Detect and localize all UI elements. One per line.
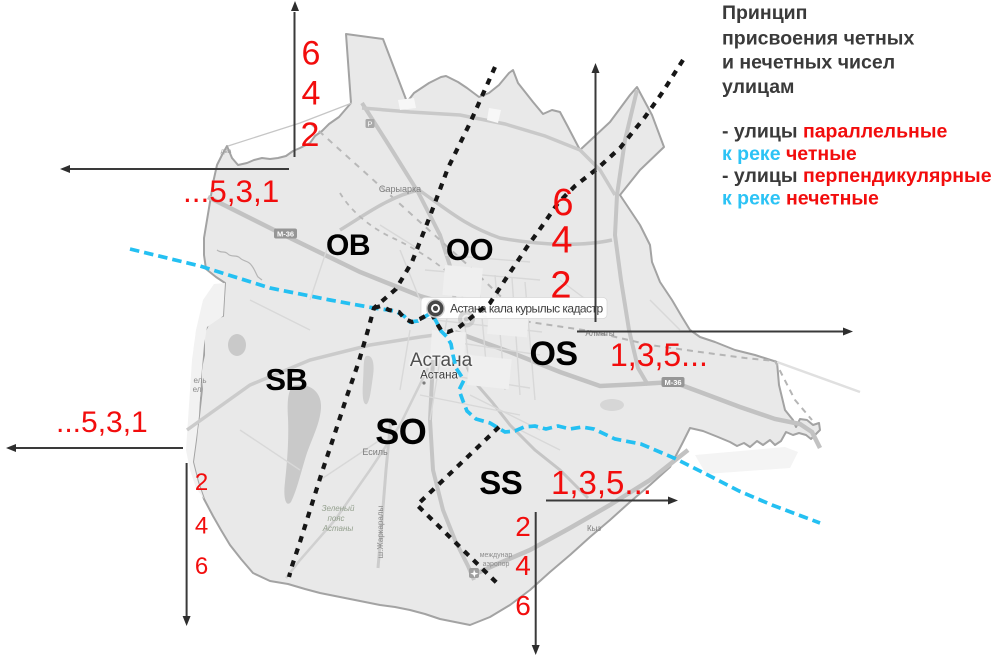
svg-text:4: 4 bbox=[195, 513, 208, 540]
svg-text:- улицы перпендикулярные: - улицы перпендикулярные bbox=[722, 165, 992, 187]
svg-text:4: 4 bbox=[302, 75, 321, 113]
svg-text:М-36: М-36 bbox=[664, 378, 681, 387]
svg-text:Астана: Астана bbox=[420, 370, 458, 382]
svg-text:Сарыарка: Сарыарка bbox=[379, 184, 421, 194]
svg-text:М-36: М-36 bbox=[277, 230, 294, 239]
svg-text:Астана кала курылыс кадастр: Астана кала курылыс кадастр bbox=[450, 302, 603, 316]
svg-text:Р: Р bbox=[367, 120, 372, 129]
svg-text:ОS: ОS bbox=[529, 335, 577, 373]
svg-text:ОО: ОО bbox=[446, 232, 493, 267]
svg-text:к реке четные: к реке четные bbox=[722, 143, 857, 165]
svg-text:4: 4 bbox=[515, 550, 531, 581]
svg-text:ОВ: ОВ bbox=[326, 229, 370, 262]
svg-text:и нечетных чисел: и нечетных чисел bbox=[722, 52, 895, 74]
svg-text:Астаны: Астаны bbox=[322, 524, 354, 533]
svg-text:6: 6 bbox=[515, 590, 531, 621]
svg-text:- улицы параллельные: - улицы параллельные bbox=[722, 121, 947, 143]
svg-text:2: 2 bbox=[195, 469, 208, 496]
svg-text:SО: SО bbox=[375, 411, 426, 452]
svg-text:6: 6 bbox=[302, 35, 321, 73]
svg-text:Принцип: Принцип bbox=[722, 2, 807, 24]
svg-text:Зеленый: Зеленый bbox=[322, 504, 355, 513]
svg-text:два: два bbox=[221, 148, 232, 155]
svg-text:Кыз: Кыз bbox=[587, 524, 601, 533]
svg-text:6: 6 bbox=[195, 553, 208, 580]
svg-text:1,3,5...: 1,3,5... bbox=[551, 464, 652, 501]
svg-text:ел: ел bbox=[193, 385, 202, 394]
svg-text:2: 2 bbox=[515, 511, 531, 542]
svg-text:пояс: пояс bbox=[328, 514, 345, 523]
svg-text:1,3,5...: 1,3,5... bbox=[610, 337, 708, 373]
svg-text:ш.Жаркаралы: ш.Жаркаралы bbox=[376, 506, 385, 559]
svg-text:2: 2 bbox=[301, 116, 320, 154]
svg-text:к реке нечетные: к реке нечетные bbox=[722, 187, 879, 209]
svg-text:ель: ель bbox=[193, 376, 206, 385]
svg-text:6: 6 bbox=[552, 182, 573, 224]
svg-text:Астана: Астана bbox=[410, 350, 473, 371]
svg-text:...5,3,1: ...5,3,1 bbox=[183, 173, 279, 209]
svg-text:аэропор: аэропор bbox=[483, 561, 510, 568]
svg-text:...5,3,1: ...5,3,1 bbox=[56, 406, 148, 439]
svg-text:SS: SS bbox=[479, 464, 522, 501]
svg-text:присвоения четных: присвоения четных bbox=[722, 28, 914, 50]
svg-text:SВ: SВ bbox=[265, 362, 307, 397]
svg-text:междунар: междунар bbox=[480, 552, 513, 559]
svg-text:2: 2 bbox=[550, 265, 571, 307]
svg-text:4: 4 bbox=[551, 220, 572, 262]
svg-text:улицам: улицам bbox=[722, 76, 794, 98]
